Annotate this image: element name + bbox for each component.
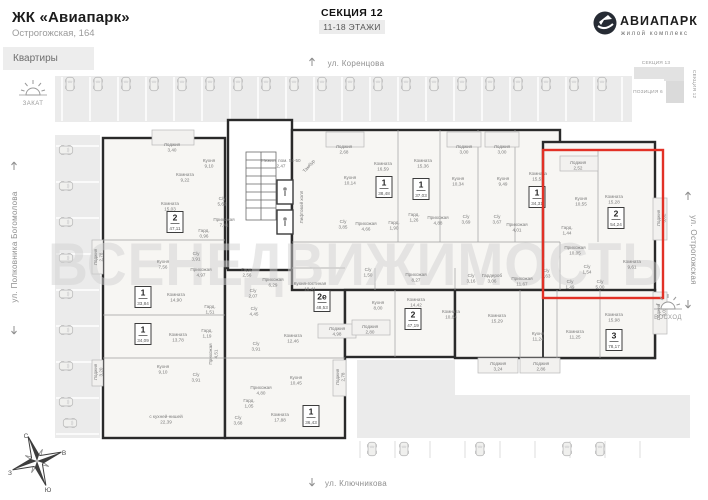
logo-title: АВИАПАРК [620,14,698,28]
room-label: Гард.1,90 [388,220,399,231]
section-title: СЕКЦИЯ 12 [292,7,412,19]
car-icon [121,77,131,90]
svg-text:2: 2 [173,213,178,223]
svg-text:Кухня10,55: Кухня10,55 [575,196,588,207]
apartment-badge[interactable]: 138,48 [376,177,392,198]
car-icon [373,77,383,90]
complex-title: ЖК «Авиапарк» [12,9,130,26]
svg-text:38,48: 38,48 [378,191,390,196]
logo-subtitle: жилой комплекс [621,30,689,37]
car-icon [485,77,495,90]
apartment-badge[interactable]: 247,11 [167,212,183,233]
car-icon [59,397,72,407]
svg-text:36,43: 36,43 [305,420,317,425]
car-icon [149,77,159,90]
room-label: Гард.1,19 [201,328,212,339]
svg-text:Гард.0,96: Гард.0,96 [198,228,209,239]
svg-text:54,24: 54,24 [610,222,622,227]
compass-west: З [8,470,12,477]
svg-text:48,53: 48,53 [316,305,328,310]
floors-range-badge: 11-18 ЭТАЖИ [319,20,385,34]
svg-text:Гард.1,90: Гард.1,90 [388,220,399,231]
car-icon [562,442,572,455]
svg-text:Кухня11,24: Кухня11,24 [532,331,545,342]
room-label: Гард.1,26 [408,212,419,223]
sunset-label: ЗАКАТ [23,101,44,107]
apartment-badge[interactable]: 133,84 [135,287,151,308]
car-icon [63,418,76,428]
car-icon [317,77,327,90]
car-icon [93,77,103,90]
car-icon [595,442,605,455]
svg-text:1: 1 [309,407,314,417]
room-label: Гард.1,51 [204,304,215,315]
svg-text:Кухня10,45: Кухня10,45 [290,375,303,386]
svg-text:Гард.1,51: Гард.1,51 [204,304,215,315]
complex-address: Острогожская, 164 [12,28,95,39]
svg-text:Кухня10,34: Кухня10,34 [452,176,465,187]
apartment-badge[interactable]: 247,19 [405,309,421,330]
svg-text:47,11: 47,11 [169,226,181,231]
car-icon [457,77,467,90]
street-right-label: ул. Острогожская [689,215,698,284]
apartment-badge[interactable]: 378,17 [606,330,622,351]
svg-text:Кухня10,14: Кухня10,14 [344,175,357,186]
car-icon [289,77,299,90]
room-label: Кухня10,14 [344,175,357,186]
car-icon [59,145,72,155]
room-label: Гард.1,05 [243,398,254,409]
apartment-badge[interactable]: 134,09 [135,324,151,345]
svg-text:34,31: 34,31 [531,201,543,206]
logo: АВИАПАРК жилой комплекс [592,8,704,40]
svg-text:47,19: 47,19 [407,323,419,328]
compass-south: Ю [45,487,52,494]
svg-text:Гард.1,44: Гард.1,44 [561,225,572,236]
svg-text:33,84: 33,84 [137,301,149,306]
car-icon [59,217,72,227]
car-icon [233,77,243,90]
svg-text:Гард.1,05: Гард.1,05 [243,398,254,409]
car-icon [429,77,439,90]
sunset-icon: ЗАКАТ [19,80,47,107]
sunrise-label: ВОСХОД [654,315,682,321]
svg-text:1: 1 [535,188,540,198]
tab-apartments[interactable]: Квартиры [3,47,94,70]
compass-north: С [24,433,29,440]
svg-text:1: 1 [382,178,387,188]
car-icon [59,325,72,335]
svg-text:2е: 2е [317,292,327,302]
room-label: Кухня10,45 [290,375,303,386]
svg-text:34,09: 34,09 [137,338,149,343]
car-icon [345,77,355,90]
svg-text:1: 1 [419,180,424,190]
room-label: Кухня10,55 [575,196,588,207]
car-icon [475,442,485,455]
car-icon [541,77,551,90]
svg-text:Гард.1,26: Гард.1,26 [408,212,419,223]
site-minimap[interactable]: СЕКЦИЯ 13 ПОЗИЦИЯ 6 СЕКЦИЯ 12 [633,60,697,103]
svg-text:1: 1 [141,325,146,335]
apartment-badge[interactable]: 2е48,53 [314,291,330,312]
svg-text:3: 3 [612,331,617,341]
apartment-badge[interactable]: 137,03 [413,179,429,200]
car-icon [177,77,187,90]
apartment-badge[interactable]: 136,43 [303,406,319,427]
car-icon [65,77,75,90]
car-icon [59,181,72,191]
svg-text:Гард.2,56: Гард.2,56 [241,267,252,278]
street-bottom-label: ул. Ключникова [325,479,387,488]
car-icon [569,77,579,90]
car-icon [261,77,271,90]
room-label: Кухня11,24 [532,331,545,342]
minimap-position: ПОЗИЦИЯ 6 [633,89,663,95]
car-icon [399,442,409,455]
room-label: Лифтовой холл [298,190,304,223]
svg-text:2: 2 [614,209,619,219]
svg-text:78,17: 78,17 [608,344,620,349]
car-icon [401,77,411,90]
room-label: Гард.0,96 [198,228,209,239]
minimap-section-right: СЕКЦИЯ 12 [691,70,697,99]
apartment-badge-selected[interactable]: 254,24 [608,208,624,229]
car-icon [597,77,607,90]
car-icon [205,77,215,90]
car-icon [59,361,72,371]
svg-text:37,03: 37,03 [415,193,427,198]
logo-plane-icon [594,12,617,35]
compass-east: В [62,450,66,457]
car-icon [367,442,377,455]
svg-text:2: 2 [411,310,416,320]
minimap-section-top: СЕКЦИЯ 13 [642,60,671,66]
svg-text:Гард.1,19: Гард.1,19 [201,328,212,339]
room-label: Кухня10,34 [452,176,465,187]
room-label: Гард.2,56 [241,267,252,278]
street-left-label: ул. Полковника Богомолова [10,191,19,302]
floor-plan: ВСЕНЕДВИЖИМОСТЬ Лоджия3,40Комната9,22Кух… [0,0,708,500]
svg-text:Лифтовой холл: Лифтовой холл [298,190,304,223]
svg-text:1: 1 [141,288,146,298]
car-icon [513,77,523,90]
street-top-label: ул. Коренцова [328,59,385,68]
room-label: Гард.1,44 [561,225,572,236]
